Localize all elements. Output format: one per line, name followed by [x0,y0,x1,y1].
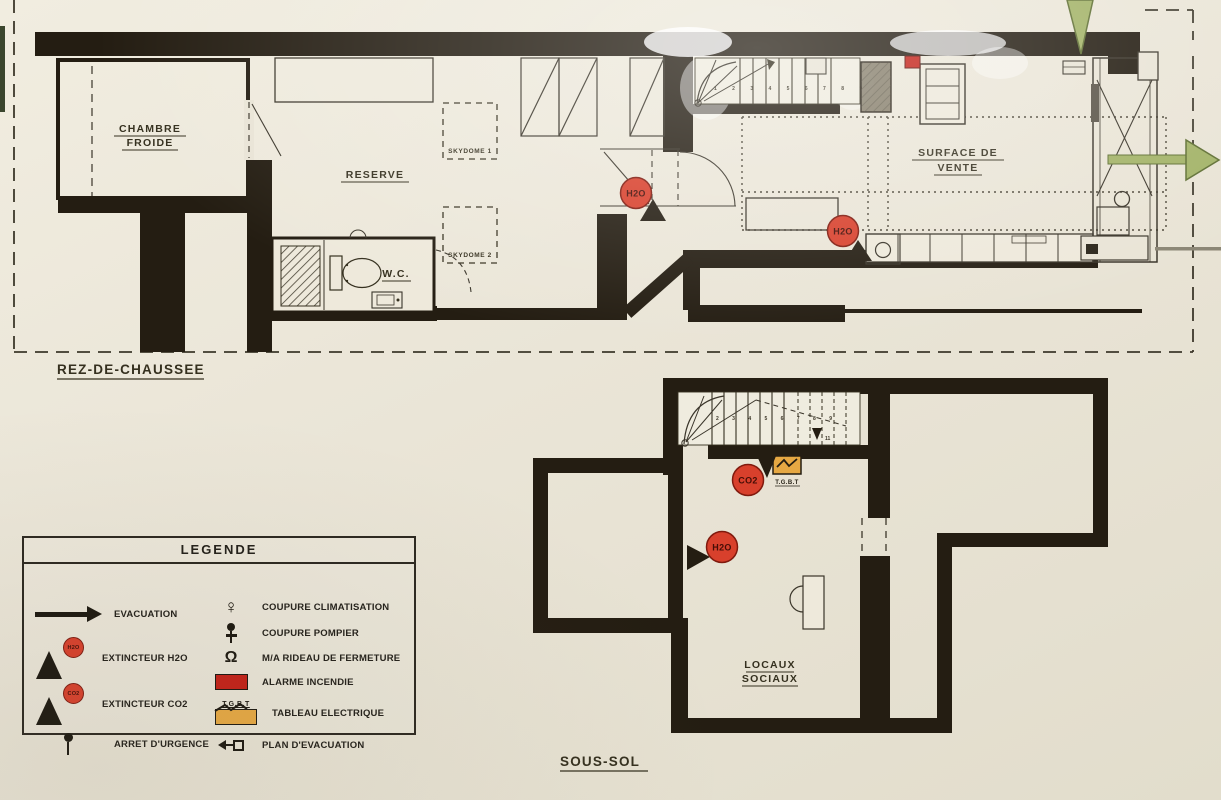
electrical-panel-marker: T.G.B.T [773,456,801,486]
legend-item-tableau-electrique: T.G.B.T TABLEAU ELECTRIQUE [212,694,384,732]
legend-item-rideau-fermeture: Ω M/A RIDEAU DE FERMETURE [212,646,400,670]
svg-text:VENTE: VENTE [937,162,978,174]
legend-body: EVACUATION H2O EXTINCTEUR H2O CO2 EXTINC… [24,564,414,732]
shower-hatch [281,246,320,306]
legend: LEGENDE EVACUATION H2O EXTINCTEUR H2O CO… [22,536,416,735]
label-locaux-sociaux: LOCAUX SOCIAUX [742,659,798,686]
roof-window-boxes [521,58,664,136]
evacuation-arrow-icon [34,606,102,622]
photo-edge-artifact [0,26,5,112]
extinguisher-h2o-icon: H2O [34,637,90,679]
svg-text:SOCIAUX: SOCIAUX [742,673,798,685]
extinguisher-h2o-marker-corridor: H2O [621,178,667,222]
basement-title: SOUS-SOL [560,754,640,769]
shutter-switch-icon: Ω [212,650,250,666]
evacuation-plan-page: CHAMBRE FROIDE RESERVE SKYDOME 1 SKYDOME… [0,0,1221,800]
label-wc: W.C. [382,268,410,280]
room-chambre-froide: CHAMBRE FROIDE [58,60,281,198]
extinguisher-h2o-marker-basement: H2O [687,532,738,571]
ground-floor-stairs: 1 2 3 4 5 6 7 8 9 [695,58,869,106]
legend-item-coupure-climatisation: ♀ COUPURE CLIMATISATION [212,594,389,620]
legend-item-evacuation: EVACUATION [34,606,177,622]
toilet-icon [330,256,381,290]
label-reserve: RESERVE [346,169,404,181]
svg-text:H2O: H2O [833,227,852,237]
basement-door-dashes [862,518,886,556]
firefighter-cutoff-icon [212,623,250,643]
ground-floor-walls [35,32,1142,352]
extinguisher-co2-icon: CO2 [34,683,90,725]
room-wc: W.C. [272,230,471,312]
legend-item-extincteur-co2: CO2 EXTINCTEUR CO2 [34,682,188,726]
legend-item-coupure-pompier: COUPURE POMPIER [212,620,359,646]
svg-text:LOCAUX: LOCAUX [744,659,796,671]
skydome-2: SKYDOME 2 [443,207,497,263]
svg-text:CO2: CO2 [738,476,757,486]
legend-item-plan-evacuation: PLAN D'EVACUATION [212,734,364,756]
desk-icon [790,576,824,629]
evacuation-plan-icon [212,740,250,751]
basement-stairs: 2 3 4 5 6 7 8 9 11 [678,392,860,446]
skydome-1: SKYDOME 1 [443,103,497,159]
hvac-cutoff-icon: ♀ [212,598,250,617]
duct-shaft [861,62,891,112]
electrical-panel-icon: T.G.B.T [212,701,260,725]
legend-item-alarme-incendie: ALARME INCENDIE [212,670,354,694]
evacuation-arrow-right-icon [1108,140,1219,180]
basement-stair-end-number: 11 [825,436,831,442]
label-skydome-1: SKYDOME 1 [448,148,492,155]
legend-item-extincteur-h2o: H2O EXTINCTEUR H2O [34,636,188,680]
label-chambre-froide: CHAMBRE [119,123,181,135]
fire-alarm-icon [212,674,250,690]
label-surface-de-vente: SURFACE DE VENTE [912,147,1004,175]
display-cabinet [920,64,965,124]
svg-text:T.G.B.T: T.G.B.T [775,480,798,486]
legend-title: LEGENDE [24,538,414,564]
emergency-stop-icon [34,733,102,755]
stair-step-numbers: 1 2 3 4 5 6 7 8 9 [714,86,869,92]
ground-floor-title: REZ-DE-CHAUSSEE [57,362,205,377]
fire-alarm-marker [905,56,920,68]
label-chambre-froide-2: FROIDE [127,137,174,149]
svg-text:SURFACE DE: SURFACE DE [918,147,998,159]
room-reserve: RESERVE [275,58,433,182]
ground-floor-plan: CHAMBRE FROIDE RESERVE SKYDOME 1 SKYDOME… [0,0,1221,379]
basement-stair-numbers: 2 3 4 5 6 7 8 9 [716,416,838,422]
svg-text:H2O: H2O [626,189,645,199]
legend-item-arret-urgence: ARRET D'URGENCE [34,730,209,758]
basement-plan: 2 3 4 5 6 7 8 9 11 T.G.B.T CO2 H2O [533,378,1108,771]
extinguisher-co2-marker: CO2 [733,456,777,496]
svg-text:H2O: H2O [712,543,731,553]
